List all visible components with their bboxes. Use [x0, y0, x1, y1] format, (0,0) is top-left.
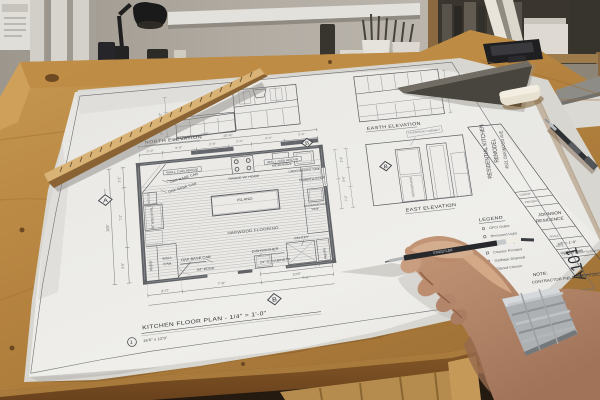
svg-text:5'-0": 5'-0" — [302, 275, 311, 280]
svg-text:(24)30 CAB: (24)30 CAB — [146, 192, 151, 205]
svg-text:7'-2": 7'-2" — [118, 214, 123, 221]
svg-text:2'-6": 2'-6" — [339, 156, 344, 162]
svg-text:19'8": 19'8" — [201, 132, 209, 136]
svg-text:3'-0": 3'-0" — [265, 136, 272, 140]
svg-text:3'-0": 3'-0" — [298, 132, 305, 136]
svg-text:B: B — [383, 164, 388, 170]
svg-text:1: 1 — [130, 340, 134, 346]
svg-text:2'-6": 2'-6" — [209, 142, 216, 146]
svg-text:3'-0": 3'-0" — [175, 146, 183, 150]
svg-text:2'-2": 2'-2" — [117, 176, 122, 183]
svg-text:3'-0": 3'-0" — [236, 139, 243, 143]
svg-text:SINK: SINK — [311, 207, 319, 211]
svg-text:16'8": 16'8" — [106, 224, 111, 232]
svg-text:3'-6": 3'-6" — [120, 262, 125, 269]
svg-text:7'-2": 7'-2" — [343, 194, 348, 201]
svg-text:PNTRY: PNTRY — [149, 260, 154, 272]
svg-text:7'-2": 7'-2" — [314, 263, 323, 267]
svg-text:3'-6": 3'-6" — [341, 176, 346, 182]
svg-text:2'-0": 2'-0" — [146, 149, 154, 153]
